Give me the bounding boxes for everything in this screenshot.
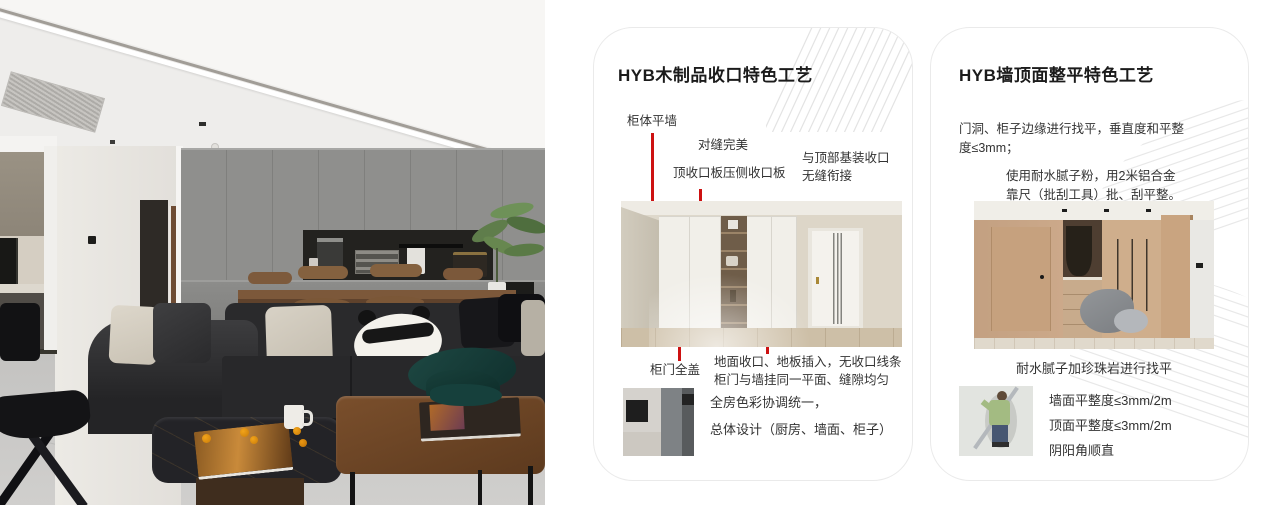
orange-fruit [202,434,211,443]
summary-line1: 全房色彩协调统一， [710,394,827,412]
pillow-black [0,303,40,361]
room-flush-door [991,227,1051,331]
spec-wall-flatness: 墙面平整度≤3mm/2m [1049,388,1172,413]
orange-fruit [240,428,249,437]
room-hanging-clothes [1066,226,1092,276]
render-light-glow [649,267,819,347]
leaf [505,213,545,237]
room-open-door [1161,215,1193,339]
wardrobe-room-image [974,201,1214,349]
spec-ceiling-flatness: 顶面平整度≤3mm/2m [1049,413,1172,438]
orange-fruit [299,439,307,447]
thumb-floor [623,432,663,456]
plant-stems [496,248,498,284]
note-line1: 地面收口、地板插入，无收口线条 [714,354,902,372]
image-caption: 耐水腻子加珍珠岩进行找平 [974,358,1214,377]
para1-line2: 度≤3mm； [959,139,1184,158]
throw-on-table [430,384,502,406]
hallway-door-dark [140,200,168,310]
pillow-gray [153,303,211,363]
dining-chair [443,268,483,280]
dining-chair [248,272,292,284]
room-wall-device [1196,263,1203,268]
leveling-specs: 墙面平整度≤3mm/2m 顶面平整度≤3mm/2m 阴阳角顺直 [1049,388,1172,463]
callout-top-board: 顶收口板压侧收口板 [673,164,786,182]
room-door-handle [1040,275,1044,279]
dining-chair [298,266,348,279]
worker-thumbnail-image [959,386,1033,456]
leveling-paragraph-2: 使用耐水腻子粉，用2米铝合金 靠尺（批刮工具）批、刮平整。 [1006,167,1181,204]
thumb-appliance [682,394,694,405]
para2-line1: 使用耐水腻子粉，用2米铝合金 [1006,167,1181,186]
pillow-beige [109,305,160,365]
table-leg-metal [350,472,355,505]
shelf-item [726,256,738,266]
card-title: HYB墙顶面整平特色工艺 [959,61,1154,86]
coffee-machine [0,238,18,290]
table-leg-metal [478,470,482,505]
callout-top-joint: 与顶部基装收口 无缝衔接 [802,149,890,185]
thumb-worker-shoes [992,442,1009,447]
dining-chair [370,264,422,277]
summary-line2: 总体设计（厨房、墙面、柜子） [710,421,892,439]
light-switch [88,236,96,244]
thumb-gray-cabinet [661,388,682,456]
callout-top-joint-line2: 无缝衔接 [802,167,890,185]
shelf-item [727,219,739,230]
room-far-wall [1190,220,1214,338]
para1-line1: 门洞、柜子边缘进行找平，垂直度和平整 [959,120,1184,139]
render-ceiling [621,201,902,215]
room-floor [974,338,1214,349]
callout-full-cover: 柜门全盖 [650,361,700,379]
thumb-worker-jeans [992,425,1008,443]
orange-fruit [293,427,301,435]
callout-top-joint-line1: 与顶部基装收口 [802,149,890,167]
callout-seam-perfect: 对缝完美 [698,136,748,154]
stone-table-base [196,478,304,505]
mug-handle [302,410,313,426]
table-leg-metal [528,466,533,505]
orange-fruit [250,436,258,444]
magazine-cover-art [429,403,464,431]
page: HYB木制品收口特色工艺 柜体平墙 对缝完美 顶收口板压侧收口板 与顶部基装收口… [0,0,1280,505]
living-room-photo [0,0,545,505]
card-wall-leveling: HYB墙顶面整平特色工艺 门洞、柜子边缘进行找平，垂直度和平整 度≤3mm； 使… [930,27,1249,481]
mug [284,405,304,429]
render-door-stripes [833,233,842,324]
downlight [110,140,115,144]
thumb-worker-shirt [989,400,1010,426]
room-pouf [1114,309,1148,333]
callout-cabinet-wall: 柜体平墙 [627,112,677,130]
card-wood-finish: HYB木制品收口特色工艺 柜体平墙 对缝完美 顶收口板压侧收口板 与顶部基装收口… [593,27,913,481]
room-downlight [1062,209,1067,212]
cabinet-render-image [621,201,902,347]
leveling-paragraph-1: 门洞、柜子边缘进行找平，垂直度和平整 度≤3mm； [959,120,1184,157]
room-downlight [1104,209,1109,212]
pillow-tan [521,300,545,356]
thumb-tv [626,400,648,422]
spec-corners: 阴阳角顺直 [1049,438,1172,463]
kitchen-trim [44,146,57,350]
finish-notes: 地面收口、地板插入，无收口线条 柜门与墙挂同一平面、缝隙均匀 [714,354,902,389]
note-line2: 柜门与墙挂同一平面、缝隙均匀 [714,372,902,390]
ceiling-fixture [199,122,206,126]
hallway-thumbnail-image [623,388,694,456]
room-downlight [1146,209,1151,212]
card-title: HYB木制品收口特色工艺 [618,61,813,86]
accessory-rail [399,244,463,248]
